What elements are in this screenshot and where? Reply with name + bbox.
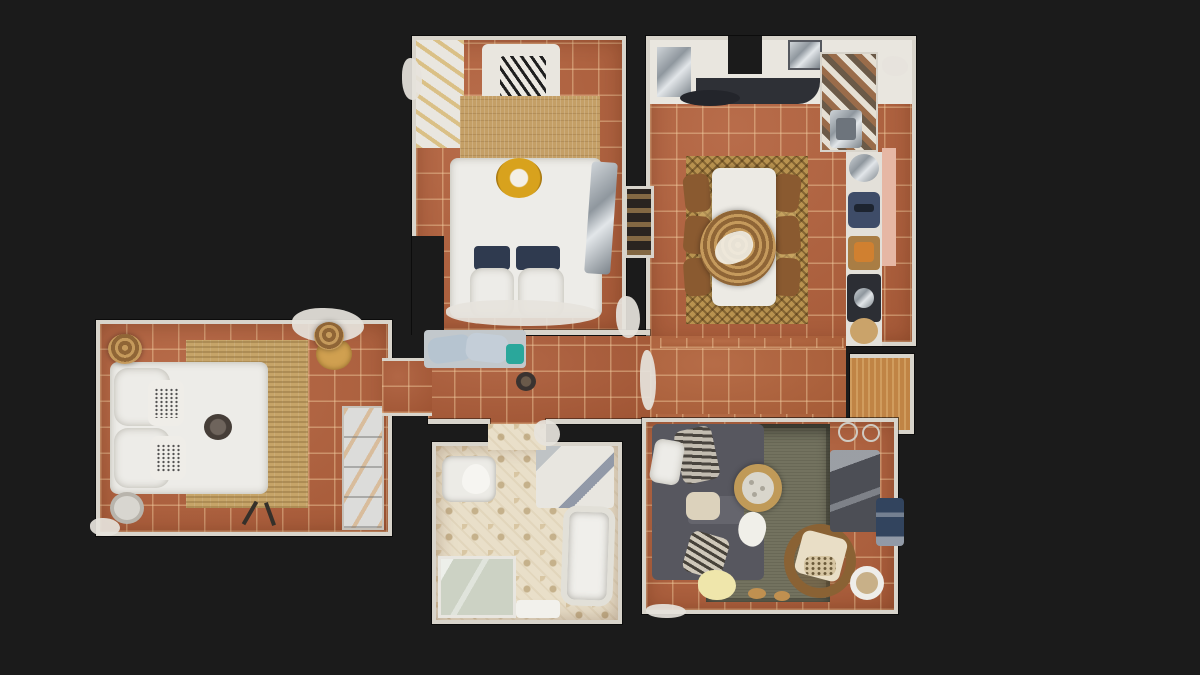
room-kitchen-dining <box>646 36 916 346</box>
bench-cushion <box>465 332 510 364</box>
toilet-bowl <box>462 464 490 494</box>
bath-mat <box>516 600 560 618</box>
scan-hole <box>412 236 444 342</box>
side-stool <box>850 566 884 600</box>
room-bedroom-top <box>412 36 626 334</box>
room-living <box>642 418 898 614</box>
appliance-column <box>846 152 882 346</box>
wardrobe <box>416 40 464 148</box>
scan-artifact <box>646 604 686 618</box>
scan-artifact <box>616 296 640 338</box>
blue-crate <box>876 498 904 546</box>
wall-niche-shelf <box>624 186 654 258</box>
tv-console <box>830 450 880 532</box>
printed-cushion <box>150 436 186 480</box>
scan-artifact <box>882 56 908 76</box>
ring-decor <box>862 424 880 442</box>
wall-recess <box>788 40 822 70</box>
dining-chair <box>682 173 712 214</box>
slipper <box>748 588 766 599</box>
round-hat-on-bed <box>204 414 232 440</box>
navy-pillow-right <box>516 246 560 270</box>
dining-opening <box>660 338 844 348</box>
navy-pillow-left <box>474 246 510 270</box>
gold-pet-nest <box>496 158 542 198</box>
table-dot <box>752 492 757 497</box>
shower-enclosure <box>438 556 516 618</box>
teal-object <box>506 344 524 364</box>
floorplan-canvas[interactable] <box>0 0 1200 675</box>
leopard-cushion <box>804 556 836 576</box>
scan-artifact <box>90 518 120 536</box>
wicker-basket <box>108 334 142 364</box>
corridor-bottom-wall <box>428 419 490 424</box>
cream-pillow <box>686 492 720 520</box>
round-side-table <box>110 492 144 524</box>
wood-box-contents <box>854 242 874 262</box>
floor-object <box>516 372 536 391</box>
yellow-blanket <box>698 570 736 600</box>
table-dot <box>760 486 765 491</box>
room-bedroom-left <box>96 320 392 536</box>
shelving-unit <box>342 406 384 530</box>
console-basket <box>314 322 344 350</box>
dining-chair <box>773 257 802 297</box>
wood-rug <box>460 96 600 163</box>
room-bathroom <box>432 442 622 624</box>
round-coffee-table <box>734 464 782 512</box>
vanity-sink <box>536 446 614 508</box>
printed-cushion <box>148 380 184 426</box>
appliance-slot <box>854 204 874 212</box>
scan-artifact <box>402 58 422 100</box>
wall-notch <box>728 36 762 74</box>
corridor-bottom-wall <box>546 419 650 424</box>
tan-basket <box>850 318 878 344</box>
cushioned-bench <box>424 330 526 368</box>
dining-chair <box>772 173 802 214</box>
pink-wall <box>882 148 896 266</box>
dining-chair <box>772 215 801 255</box>
washer-drum <box>854 288 874 308</box>
centerpiece-highlight <box>710 227 758 269</box>
metal-pot <box>849 154 879 182</box>
zebra-bench <box>500 56 546 98</box>
scan-artifact <box>534 420 560 446</box>
ring-decor <box>838 422 858 442</box>
bathtub <box>560 505 615 607</box>
countertop-shadow <box>680 90 740 106</box>
scan-artifact <box>446 300 600 326</box>
table-dot <box>749 480 754 485</box>
sink-basin <box>836 118 856 140</box>
wicker-centerpiece <box>700 210 776 286</box>
slipper <box>774 591 790 601</box>
